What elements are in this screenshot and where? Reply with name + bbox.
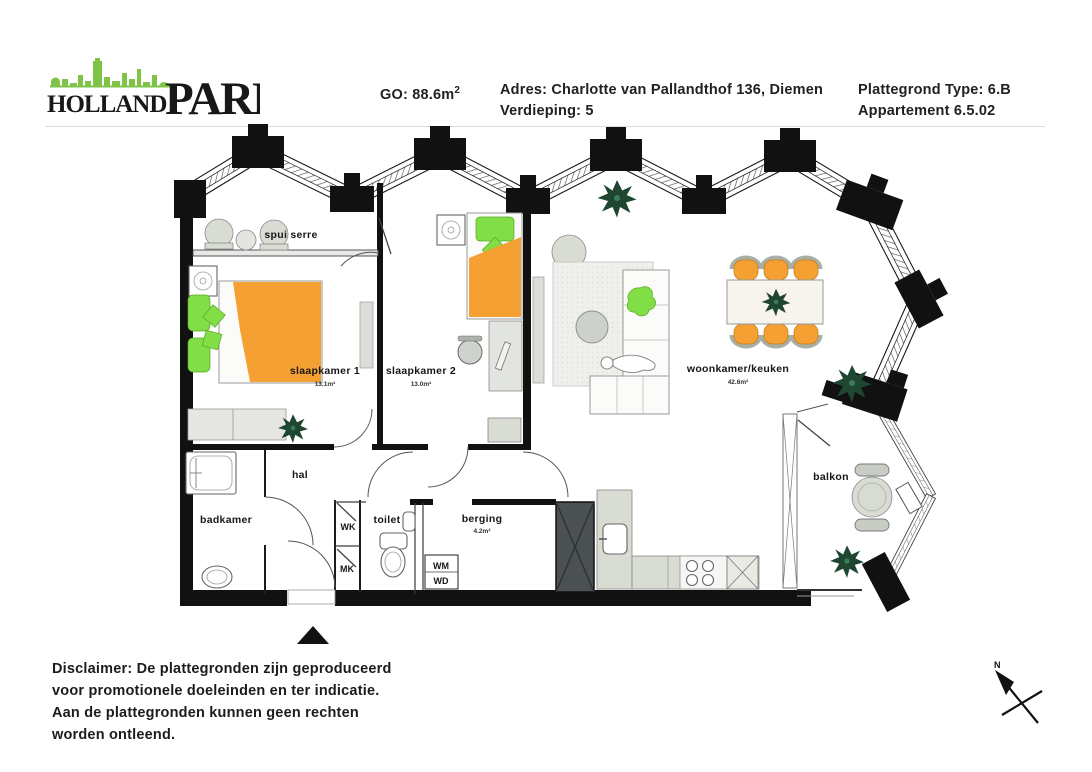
disclaimer-line-4: worden ontleend. xyxy=(52,724,392,746)
serre-table xyxy=(236,230,256,250)
wall-living-divider xyxy=(523,196,531,450)
label-woonkamer: woonkamer/keuken xyxy=(686,363,789,375)
label-mk: MK xyxy=(340,564,354,574)
disclaimer: Disclaimer: De plattegronden zijn geprod… xyxy=(52,658,392,746)
mv-unit-icon xyxy=(189,266,217,296)
wall-bottom-left xyxy=(180,590,287,606)
label-hal: hal xyxy=(292,469,308,481)
area-berging: 4.2m² xyxy=(474,528,492,535)
mv-unit-icon xyxy=(437,215,465,245)
label-toilet: toilet xyxy=(374,514,401,526)
area-woonkamer: 42.6m² xyxy=(728,379,749,386)
disclaimer-line-2: voor promotionele doeleinden en ter indi… xyxy=(52,680,392,702)
compass-n-label: N xyxy=(994,660,1001,670)
balcony-chair xyxy=(855,464,889,476)
washbasin xyxy=(202,566,232,588)
room-slaapkamer-2: slaapkamer 2 13.0m² xyxy=(386,213,522,442)
label-spui-serre: spui serre xyxy=(264,229,317,241)
label-wk: WK xyxy=(341,522,356,532)
kitchen xyxy=(597,490,759,589)
label-slaapkamer-2: slaapkamer 2 xyxy=(386,365,456,377)
compass: N xyxy=(994,660,1042,723)
coffee-table xyxy=(576,311,608,343)
floorplan: spui serre slaapkamer 1 13.1m² slaapkame… xyxy=(0,0,1092,772)
room-berging: WM WD berging 4.2m² xyxy=(425,513,502,589)
balcony-opening xyxy=(896,482,922,513)
radiator xyxy=(360,302,373,368)
desk-chair xyxy=(458,340,482,364)
serre-sill xyxy=(193,250,378,256)
toilet-sink xyxy=(403,512,415,531)
label-berging: berging xyxy=(462,513,503,525)
sofa-chaise xyxy=(590,376,669,414)
balcony-chair xyxy=(855,519,889,531)
wardrobe xyxy=(188,409,286,440)
disclaimer-line-3: Aan de plattegronden kunnen geen rechten xyxy=(52,702,392,724)
room-woonkamer-keuken: woonkamer/keuken 42.6m² xyxy=(533,180,872,592)
disclaimer-line-1: Disclaimer: De plattegronden zijn geprod… xyxy=(52,658,392,680)
area-slaapkamer-1: 13.1m² xyxy=(315,381,336,388)
label-badkamer: badkamer xyxy=(200,514,252,526)
cooktop xyxy=(680,556,727,589)
radiator xyxy=(533,277,544,383)
room-slaapkamer-1: slaapkamer 1 13.1m² xyxy=(188,266,373,443)
label-balkon: balkon xyxy=(813,471,849,483)
label-slaapkamer-1: slaapkamer 1 xyxy=(290,365,360,377)
plant-icon xyxy=(830,545,864,578)
label-wd: WD xyxy=(434,576,449,586)
room-badkamer: badkamer xyxy=(186,452,252,588)
entrance-marker-icon xyxy=(297,626,329,644)
plant-icon xyxy=(598,180,637,218)
wall-left xyxy=(180,190,193,596)
dining-set xyxy=(727,258,823,346)
room-toilet: toilet xyxy=(374,512,415,577)
dresser xyxy=(488,418,521,442)
entrance-door xyxy=(288,590,335,604)
area-slaapkamer-2: 13.0m² xyxy=(411,381,432,388)
label-wm: WM xyxy=(433,561,449,571)
room-spui-serre: spui serre xyxy=(205,219,318,250)
shaft xyxy=(556,502,594,592)
